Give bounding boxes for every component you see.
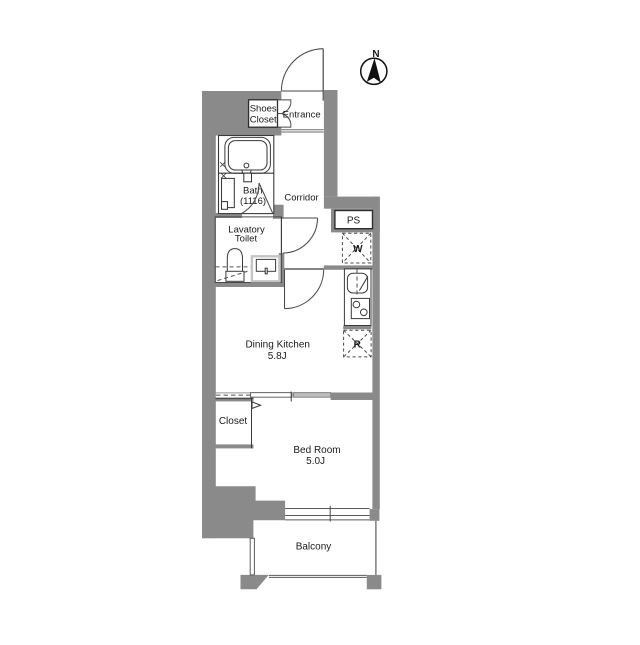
- svg-text:Dining Kitchen: Dining Kitchen: [245, 340, 309, 351]
- svg-text:Bed Room: Bed Room: [293, 445, 340, 456]
- svg-text:PS: PS: [347, 215, 361, 226]
- svg-text:Shoes: Shoes: [250, 104, 277, 115]
- svg-text:5.0J: 5.0J: [306, 456, 325, 467]
- svg-text:N: N: [372, 49, 379, 60]
- svg-text:(1116): (1116): [240, 196, 266, 207]
- svg-text:R: R: [354, 339, 362, 350]
- svg-text:5.8J: 5.8J: [268, 351, 287, 362]
- svg-text:Entrance: Entrance: [283, 109, 321, 120]
- svg-text:Closet: Closet: [250, 115, 277, 126]
- svg-text:Balcony: Balcony: [296, 542, 332, 553]
- svg-text:Bath: Bath: [243, 185, 263, 196]
- svg-text:Corridor: Corridor: [284, 193, 318, 204]
- svg-text:Toilet: Toilet: [235, 233, 258, 244]
- svg-text:Closet: Closet: [219, 416, 248, 427]
- svg-text:W: W: [353, 244, 363, 255]
